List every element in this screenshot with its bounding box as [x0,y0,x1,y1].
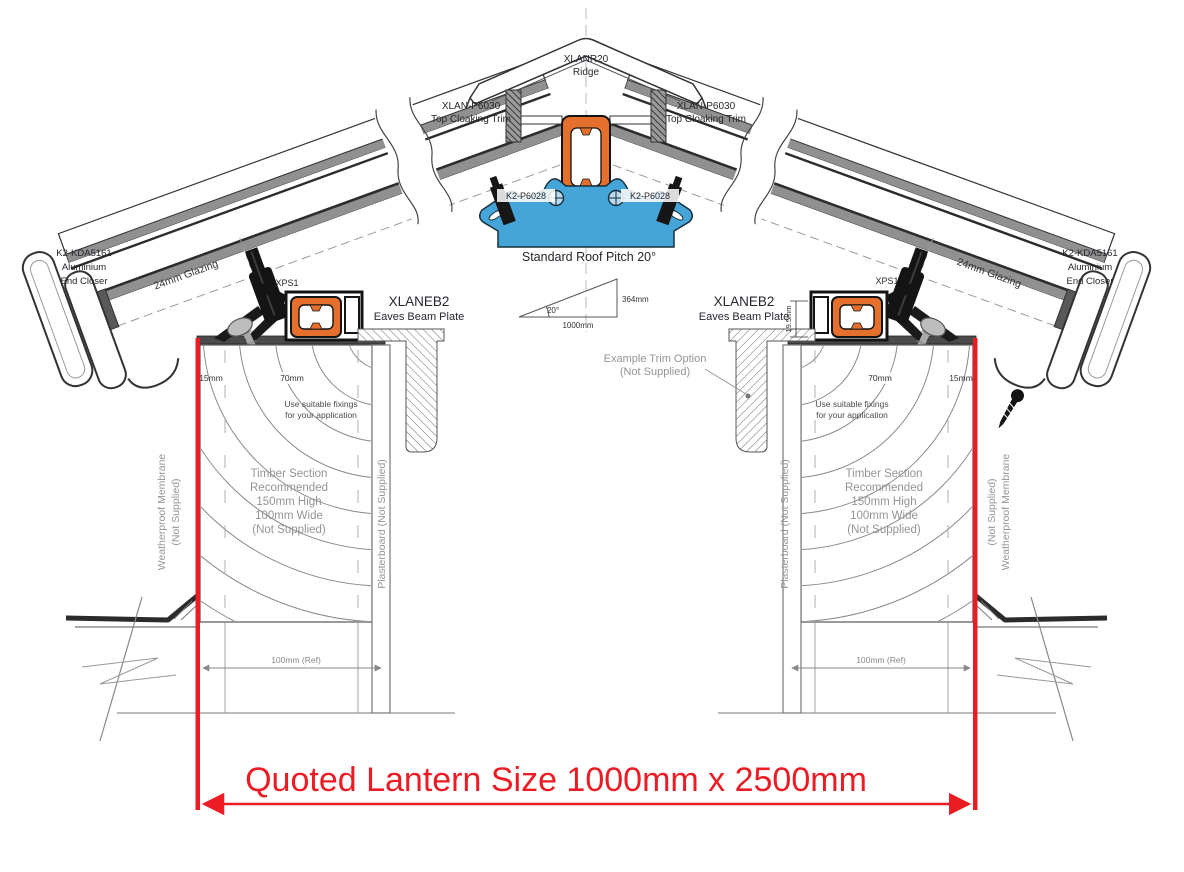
plasterboard-label-right: Plasterboard (Not Supplied) [779,459,791,589]
dim-15-right: 15mm [949,373,973,383]
svg-text:Timber Section: Timber Section [251,468,328,480]
eaves-name-right: Eaves Beam Plate [699,311,790,323]
beam-height-label: 19.5mm [784,305,793,332]
ridge-post [651,90,666,142]
dim-15-left: 15mm [199,373,223,383]
cloaking-code-right: XLAN-P6030 [677,101,736,112]
quoted-size-label: Quoted Lantern Size 1000mm x 2500mm [245,761,867,799]
end-closer-l3-left: End Closer [61,276,108,287]
xps-label-right: XPS1 [875,276,898,286]
ref-100-right: 100mm (Ref) [856,655,906,665]
fixings-l2-left: for your application [285,410,357,420]
svg-text:Weatherproof Membrane: Weatherproof Membrane [1000,454,1012,571]
clip-code-right: K2-P6028 [630,191,670,201]
diagram-canvas: XLANR20 Ridge XLAN-P6030 Top Cloaking Tr… [0,0,1184,872]
roof-lantern-section-diagram: XLANR20 Ridge XLAN-P6030 Top Cloaking Tr… [0,0,1184,872]
pitch-triangle [519,279,617,317]
end-closer-code-left: K2-KDA5161 [56,248,111,259]
fixings-l2-right: for your application [816,410,888,420]
fixings-l1-right: Use suitable fixings [815,399,888,409]
pitch-note-label: Standard Roof Pitch 20° [522,250,656,264]
svg-text:19.5mm: 19.5mm [784,305,793,332]
quote-line-left [196,338,201,810]
cloaking-code-left: XLAN-P6030 [442,101,501,112]
timber-note-left: Timber Section Recommended 150mm High 10… [250,468,328,536]
ref-100-left: 100mm (Ref) [271,655,321,665]
svg-text:Timber Section: Timber Section [846,468,923,480]
end-closer-code-right: K2-KDA5161 [1062,248,1117,259]
ridge-code-label: XLANR20 [564,54,609,65]
screw-icon [993,387,1027,432]
ridge-name-label: Ridge [573,67,600,78]
pitch-base-label: 1000mm [562,321,593,330]
fixings-l1-left: Use suitable fixings [284,399,357,409]
cloaking-name-left: Top Cloaking Trim [431,114,511,125]
cloaking-name-right: Top Cloaking Trim [666,114,746,125]
end-closer-l3-right: End Closer [1067,276,1114,287]
dim-70-right: 70mm [868,373,892,383]
clip-code-left: K2-P6028 [506,191,546,201]
svg-text:Recommended: Recommended [250,482,328,494]
eaves-code-left: XLANEB2 [389,294,450,309]
svg-text:Plasterboard (Not Supplied): Plasterboard (Not Supplied) [779,459,791,589]
xps-label-left: XPS1 [275,278,298,288]
timber-note-right: Timber Section Recommended 150mm High 10… [845,468,923,536]
svg-text:Weatherproof Membrane: Weatherproof Membrane [156,454,168,571]
svg-text:100mm Wide: 100mm Wide [255,510,323,522]
membrane-label-left: Weatherproof Membrane (Not Supplied) [156,454,182,571]
quote-line-right [973,338,978,810]
weatherproof-membrane-line [66,596,197,620]
svg-text:(Not Supplied): (Not Supplied) [847,524,921,536]
svg-text:(Not Supplied): (Not Supplied) [986,478,998,545]
svg-text:150mm High: 150mm High [851,496,916,508]
pitch-angle-label: 20° [547,306,559,315]
trim-option-l1: Example Trim Option [604,353,707,365]
eaves-name-left: Eaves Beam Plate [374,311,465,323]
dim-70-left: 70mm [280,373,304,383]
svg-text:(Not Supplied): (Not Supplied) [252,524,326,536]
pitch-rise-label: 364mm [622,295,649,304]
eaves-code-right: XLANEB2 [714,294,775,309]
svg-text:Plasterboard (Not Supplied): Plasterboard (Not Supplied) [376,459,388,589]
trim-option-l2: (Not Supplied) [620,366,690,378]
end-closer-l2-left: Aluminium [62,262,106,273]
membrane-label-right: Weatherproof Membrane (Not Supplied) [986,454,1012,571]
svg-text:(Not Supplied): (Not Supplied) [170,478,182,545]
plasterboard-label-left: Plasterboard (Not Supplied) [376,459,388,589]
svg-text:Recommended: Recommended [845,482,923,494]
svg-text:100mm Wide: 100mm Wide [850,510,918,522]
end-closer-l2-right: Aluminium [1068,262,1112,273]
svg-text:150mm High: 150mm High [256,496,321,508]
